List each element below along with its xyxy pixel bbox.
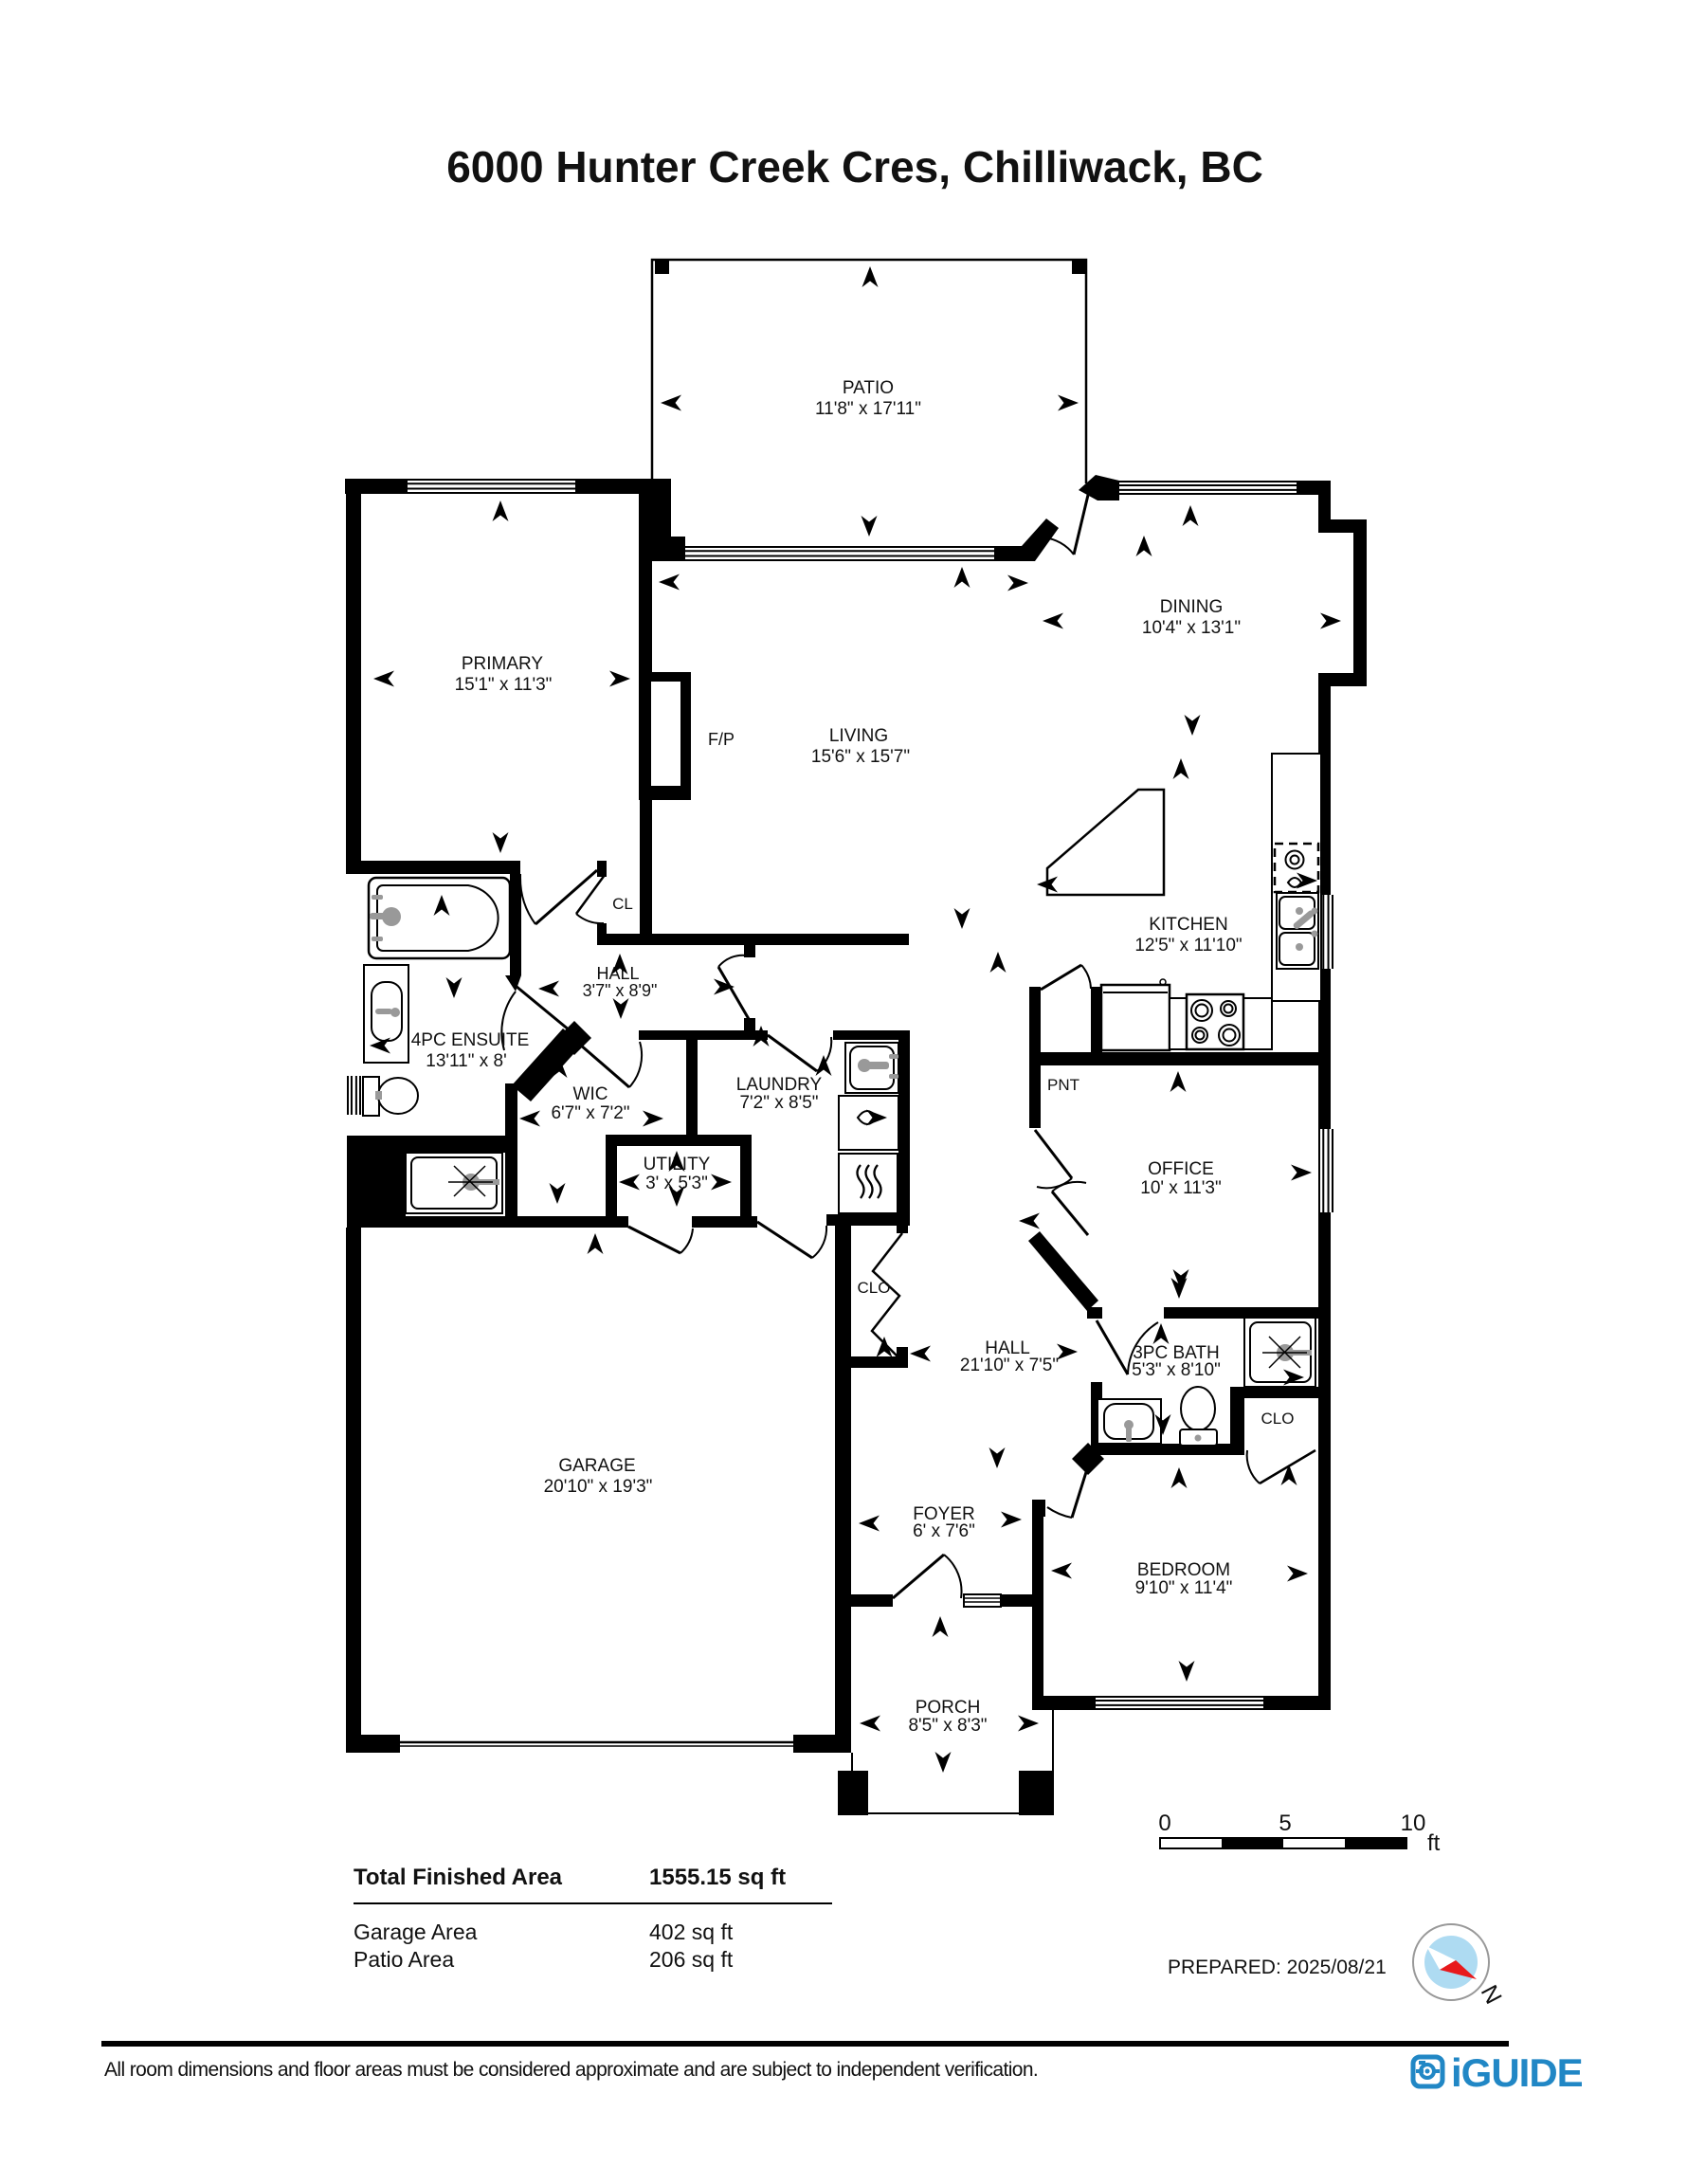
svg-text:BEDROOM: BEDROOM xyxy=(1137,1560,1230,1580)
svg-text:KITCHEN: KITCHEN xyxy=(1149,915,1227,935)
svg-text:WIC: WIC xyxy=(573,1084,608,1104)
svg-text:15'6" x 15'7": 15'6" x 15'7" xyxy=(811,747,910,767)
svg-text:3' x 5'3": 3' x 5'3" xyxy=(645,1174,708,1193)
svg-text:PORCH: PORCH xyxy=(916,1698,981,1718)
svg-text:402 sq ft: 402 sq ft xyxy=(649,1920,734,1944)
svg-text:Garage Area: Garage Area xyxy=(354,1920,478,1944)
svg-text:12'5" x 11'10": 12'5" x 11'10" xyxy=(1134,936,1242,955)
svg-text:Total Finished Area: Total Finished Area xyxy=(354,1865,563,1890)
svg-text:0: 0 xyxy=(1158,1811,1170,1836)
svg-text:PRIMARY: PRIMARY xyxy=(462,654,544,674)
svg-text:LIVING: LIVING xyxy=(829,726,888,746)
svg-text:PATIO: PATIO xyxy=(843,378,894,398)
svg-text:DINING: DINING xyxy=(1160,597,1224,617)
svg-text:CLO: CLO xyxy=(1261,1410,1295,1428)
svg-text:20'10" x 19'3": 20'10" x 19'3" xyxy=(544,1477,653,1497)
svg-text:PREPARED: 2025/08/21: PREPARED: 2025/08/21 xyxy=(1168,1956,1387,1978)
svg-text:3'7" x 8'9": 3'7" x 8'9" xyxy=(583,981,658,1000)
svg-text:ft: ft xyxy=(1427,1830,1441,1856)
svg-text:11'8" x 17'11": 11'8" x 17'11" xyxy=(815,399,921,419)
svg-text:F/P: F/P xyxy=(708,730,735,749)
svg-text:10'4" x 13'1": 10'4" x 13'1" xyxy=(1142,618,1241,638)
svg-text:7'2" x 8'5": 7'2" x 8'5" xyxy=(739,1093,818,1113)
svg-text:All room dimensions and floor: All room dimensions and floor areas must… xyxy=(104,2059,1038,2081)
svg-text:10: 10 xyxy=(1401,1811,1426,1836)
svg-text:4PC ENSUITE: 4PC ENSUITE xyxy=(411,1030,530,1050)
svg-text:CL: CL xyxy=(612,895,633,913)
svg-text:8'5" x 8'3": 8'5" x 8'3" xyxy=(908,1716,987,1736)
svg-text:6'7" x 7'2": 6'7" x 7'2" xyxy=(551,1103,629,1123)
svg-text:9'10" x 11'4": 9'10" x 11'4" xyxy=(1135,1578,1233,1598)
svg-text:1555.15 sq ft: 1555.15 sq ft xyxy=(649,1865,786,1890)
svg-text:10' x 11'3": 10' x 11'3" xyxy=(1140,1178,1221,1198)
svg-text:5: 5 xyxy=(1279,1811,1291,1836)
svg-text:6000 Hunter Creek Cres, Chilli: 6000 Hunter Creek Cres, Chilliwack, BC xyxy=(446,142,1263,191)
svg-text:13'11" x 8': 13'11" x 8' xyxy=(426,1051,506,1071)
svg-text:Patio Area: Patio Area xyxy=(354,1947,454,1972)
svg-text:6' x 7'6": 6' x 7'6" xyxy=(913,1521,975,1541)
svg-text:CLO: CLO xyxy=(858,1279,891,1297)
svg-text:21'10" x 7'5": 21'10" x 7'5" xyxy=(960,1356,1059,1375)
svg-text:15'1" x 11'3": 15'1" x 11'3" xyxy=(455,675,553,695)
svg-text:LAUNDRY: LAUNDRY xyxy=(736,1075,823,1095)
svg-text:206 sq ft: 206 sq ft xyxy=(649,1947,734,1972)
svg-text:5'3" x 8'10": 5'3" x 8'10" xyxy=(1132,1360,1221,1380)
svg-text:PNT: PNT xyxy=(1047,1076,1079,1094)
svg-text:OFFICE: OFFICE xyxy=(1148,1159,1214,1179)
svg-text:iGUIDE: iGUIDE xyxy=(1451,2050,1583,2095)
svg-text:GARAGE: GARAGE xyxy=(558,1456,635,1476)
